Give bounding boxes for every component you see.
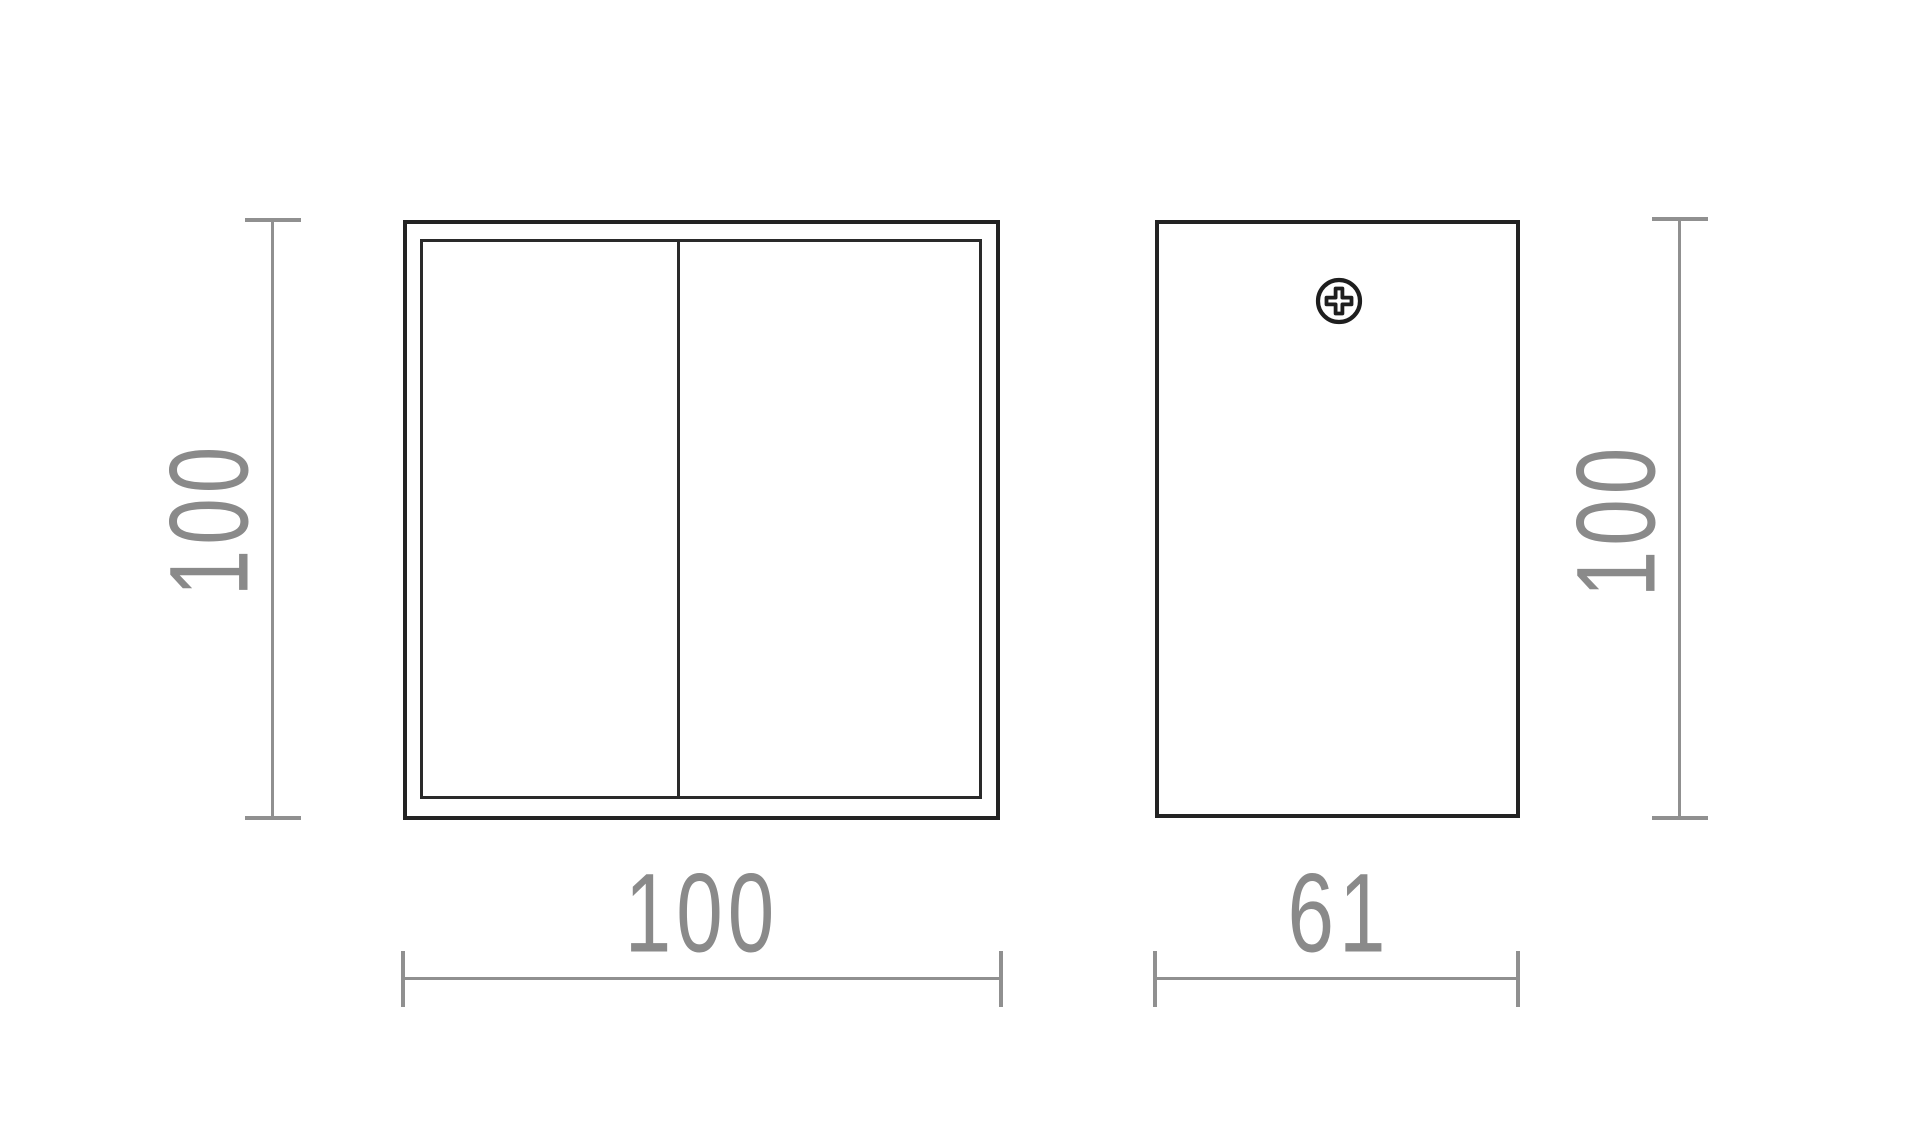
dim-side-width-tick-right <box>1516 951 1520 1007</box>
dim-side-width-label: 61 <box>1225 857 1453 971</box>
dim-front-height-label: 100 <box>153 405 267 633</box>
dim-front-width-tick-right <box>999 951 1003 1007</box>
dim-side-height-tick-bottom <box>1652 816 1708 820</box>
dim-front-height-tick-top <box>245 218 301 222</box>
dim-side-height-label: 100 <box>1560 406 1674 634</box>
front-view-center-seam-line <box>677 239 680 799</box>
dim-side-width-line <box>1155 977 1520 980</box>
dim-front-width-label: 100 <box>588 857 816 971</box>
dim-front-width-line <box>403 977 1001 980</box>
front-view-inner-frame <box>420 239 982 799</box>
dim-front-width-tick-left <box>401 951 405 1007</box>
dim-side-height-tick-top <box>1652 217 1708 221</box>
dim-side-width-tick-left <box>1153 951 1157 1007</box>
phillips-screw-icon <box>1307 269 1371 333</box>
technical-drawing-canvas: 100 100 100 61 <box>0 0 1920 1121</box>
dim-front-height-tick-bottom <box>245 816 301 820</box>
